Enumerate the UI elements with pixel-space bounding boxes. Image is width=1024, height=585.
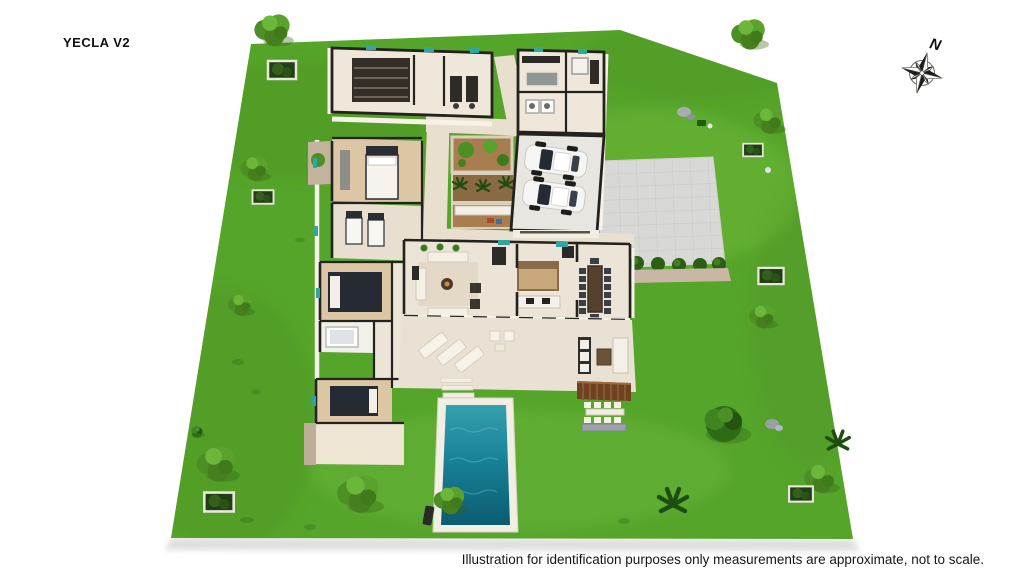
floorplan-illustration: N YECLA V2 Illustration for identificati… [0, 0, 1024, 585]
compass-rose-icon: N [897, 30, 952, 98]
ground-shadow [165, 538, 860, 551]
living-core [404, 240, 633, 320]
site-plan-render: N [0, 0, 1024, 585]
planter [758, 268, 783, 284]
planter [743, 144, 763, 157]
garage [511, 134, 604, 238]
sun-terrace [398, 316, 636, 392]
entry-hall [492, 247, 506, 265]
tree [731, 19, 769, 49]
pool-steps [441, 378, 474, 398]
courtyard-planters [452, 137, 514, 228]
planter [253, 190, 274, 204]
planter [268, 61, 296, 79]
tree [254, 14, 294, 46]
walk-in-closet [352, 58, 410, 102]
plan-title: YECLA V2 [63, 35, 130, 50]
lower-terrace [304, 423, 404, 465]
dressing-room-wing [330, 45, 492, 124]
stone-curb [628, 268, 731, 283]
planter [204, 493, 233, 512]
north-label: N [928, 35, 944, 54]
disclaimer-text: Illustration for identification purposes… [462, 552, 984, 567]
planter [789, 486, 813, 501]
